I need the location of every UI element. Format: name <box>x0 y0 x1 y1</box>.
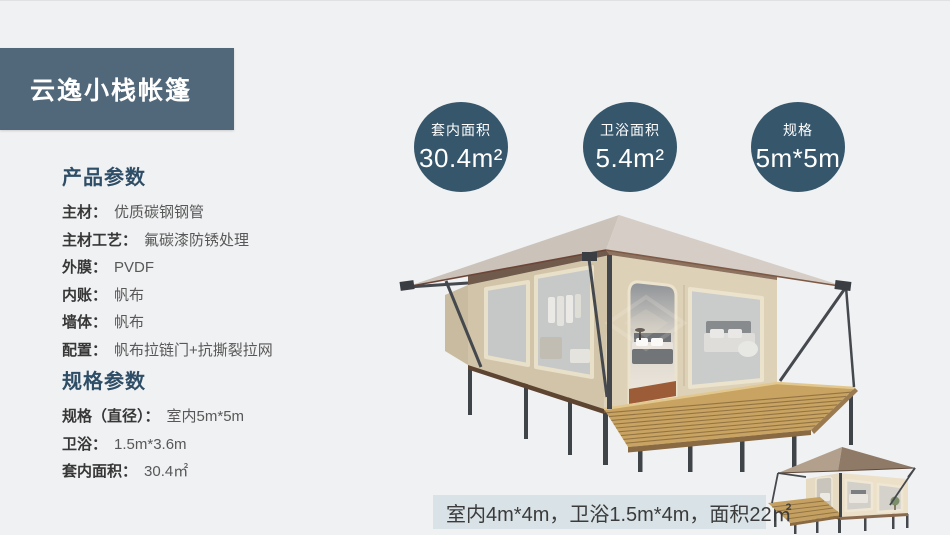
spec-label: 卫浴： <box>62 436 107 453</box>
product-params-heading: 产品参数 <box>62 163 392 199</box>
size-badge: 规格 5m*5m <box>751 102 845 192</box>
badge-value: 5.4m² <box>583 143 677 174</box>
size-params-heading: 规格参数 <box>62 367 392 403</box>
spec-label: 主材工艺： <box>62 232 137 249</box>
spec-row: 配置：帆布拉链门+抗撕裂拉网 <box>62 337 392 365</box>
spec-label: 主材： <box>62 204 107 221</box>
spec-row: 规格（直径）：室内5m*5m <box>62 403 392 431</box>
spec-value: PVDF <box>114 259 154 276</box>
spec-value: 帆布 <box>114 287 144 304</box>
size-params-section: 规格参数 规格（直径）：室内5m*5m 卫浴：1.5m*3.6m 套内面积：30… <box>62 367 392 486</box>
spec-value: 帆布拉链门+抗撕裂拉网 <box>114 342 273 359</box>
caption-text: 室内4m*4m，卫浴1.5m*4m，面积22㎡ <box>433 498 792 527</box>
bedroom-through-window <box>704 321 758 357</box>
spec-value: 优质碳钢钢管 <box>114 204 204 221</box>
spec-value: 1.5m*3.6m <box>114 436 187 453</box>
window <box>486 282 528 365</box>
spec-row: 墙体：帆布 <box>62 309 392 337</box>
badge-value: 30.4m² <box>414 143 508 174</box>
title-box: 云逸小栈帐篷 <box>0 48 234 130</box>
spec-row: 内账：帆布 <box>62 282 392 310</box>
corner-post <box>607 255 612 409</box>
spec-label: 规格（直径）： <box>62 408 160 425</box>
spec-value: 帆布 <box>114 314 144 331</box>
badge-label: 卫浴面积 <box>583 120 677 140</box>
page-title: 云逸小栈帐篷 <box>0 71 192 107</box>
badge-value: 5m*5m <box>751 143 845 174</box>
spec-label: 配置： <box>62 342 107 359</box>
spec-row: 主材工艺：氟碳漆防锈处理 <box>62 227 392 255</box>
spec-label: 外膜： <box>62 259 107 276</box>
small-tent-illustration <box>768 427 950 535</box>
spec-label: 墙体： <box>62 314 107 331</box>
interior-area-badge: 套内面积 30.4m² <box>414 102 508 192</box>
spec-label: 内账： <box>62 287 107 304</box>
product-params-section: 产品参数 主材：优质碳钢钢管 主材工艺：氟碳漆防锈处理 外膜：PVDF 内账：帆… <box>62 163 392 364</box>
spec-row: 卫浴：1.5m*3.6m <box>62 431 392 459</box>
bathroom-area-badge: 卫浴面积 5.4m² <box>583 102 677 192</box>
spec-row: 外膜：PVDF <box>62 254 392 282</box>
spec-value: 30.4㎡ <box>144 463 188 480</box>
badge-label: 规格 <box>751 120 845 140</box>
caption-bar: 室内4m*4m，卫浴1.5m*4m，面积22㎡ <box>433 495 766 529</box>
spec-row: 主材：优质碳钢钢管 <box>62 199 392 227</box>
badge-label: 套内面积 <box>414 120 508 140</box>
spec-row: 套内面积：30.4㎡ <box>62 458 392 486</box>
spec-value: 室内5m*5m <box>167 408 245 425</box>
spec-value: 氟碳漆防锈处理 <box>144 232 249 249</box>
right-window <box>690 289 762 387</box>
spec-label: 套内面积： <box>62 463 137 480</box>
slide: 云逸小栈帐篷 产品参数 主材：优质碳钢钢管 主材工艺：氟碳漆防锈处理 外膜：PV… <box>0 0 950 535</box>
